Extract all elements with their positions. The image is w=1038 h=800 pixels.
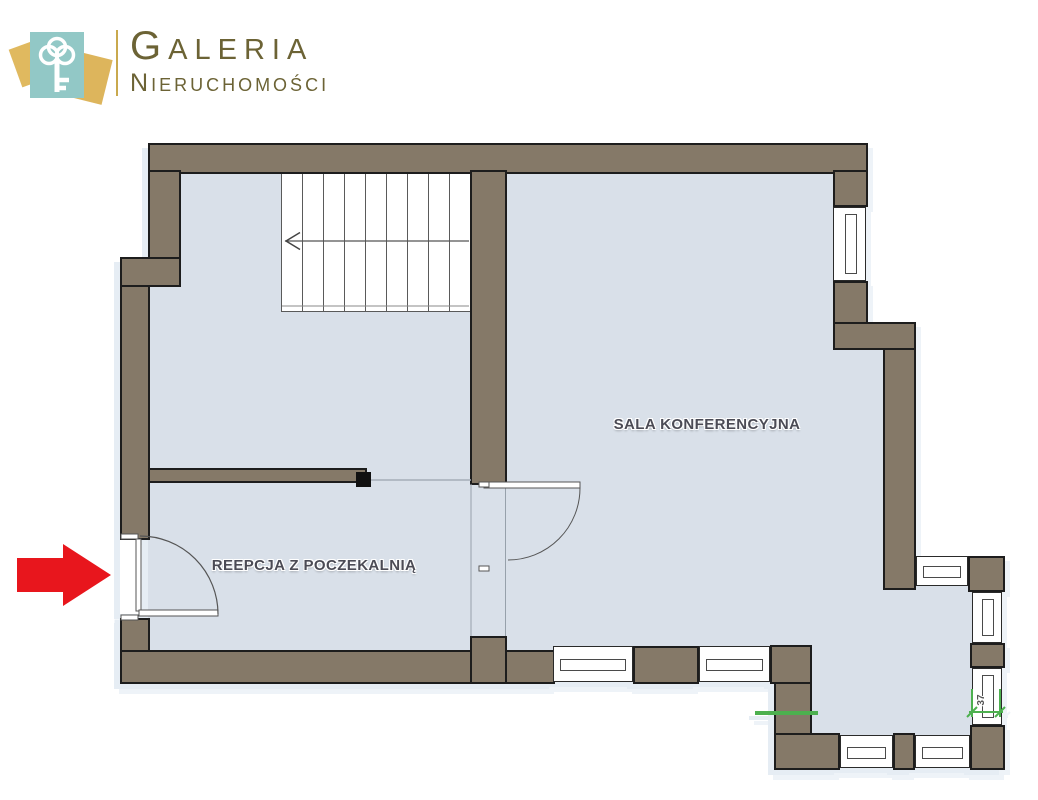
window xyxy=(553,646,633,682)
key-icon xyxy=(30,32,84,98)
window-glass xyxy=(847,747,886,759)
wall-interior-vertical xyxy=(470,170,507,485)
wall-bay-bottom-pier xyxy=(893,733,915,770)
wall-left-lower xyxy=(120,618,150,652)
wall-divider-endpost xyxy=(356,472,371,487)
floor-area-bay-right xyxy=(883,586,975,735)
wall-left-jog xyxy=(120,257,181,287)
window xyxy=(833,207,866,281)
wall-divider-reception xyxy=(148,468,367,483)
floor-area-conference-right xyxy=(833,346,885,654)
wall-right-mid2 xyxy=(883,348,916,590)
window xyxy=(915,735,970,768)
window-glass xyxy=(922,747,963,759)
wall-right-mid1 xyxy=(833,281,868,324)
dimension-value: 37 xyxy=(976,685,992,715)
wall-bay-left xyxy=(774,682,812,737)
window xyxy=(840,735,893,768)
window xyxy=(972,592,1002,643)
wall-right-upper xyxy=(833,170,868,207)
floor-area-conference xyxy=(503,170,835,654)
floor-plan xyxy=(0,0,1038,800)
brand-name: GALERIA xyxy=(130,26,329,70)
floor-area-bay-lower xyxy=(810,648,885,737)
room-label-reception: REEPCJA Z POCZEKALNIĄ xyxy=(184,557,444,574)
window-glass xyxy=(560,659,626,671)
wall-interior-vertical-lower xyxy=(470,636,507,684)
stairs xyxy=(281,172,471,312)
entrance-opening xyxy=(120,540,140,614)
brand-text: GALERIA NIERUCHOMOŚCI xyxy=(130,26,329,98)
wall-left-upper xyxy=(148,170,181,259)
wall-bay-left-top xyxy=(770,645,812,684)
wall-bay-top-corner xyxy=(968,556,1005,592)
window-glass xyxy=(706,659,763,671)
room-label-conference: SALA KONFERENCYJNA xyxy=(577,416,837,433)
window-glass xyxy=(923,566,961,578)
wall-right-step xyxy=(833,322,916,350)
logo-separator xyxy=(116,30,118,96)
window xyxy=(916,556,968,586)
wall-bay-right-pier xyxy=(970,643,1005,668)
window xyxy=(699,646,770,682)
window-glass xyxy=(982,599,994,636)
wall-top xyxy=(148,143,868,174)
wall-left-mid xyxy=(120,285,150,540)
wall-bay-bottom-corner xyxy=(774,733,840,770)
window-glass xyxy=(845,214,857,274)
brand-subtitle: NIERUCHOMOŚCI xyxy=(130,70,329,98)
logo-tile xyxy=(30,32,84,98)
wall-bottom-pier xyxy=(633,646,699,684)
wall-bay-right-bottom xyxy=(970,725,1005,770)
brand-logo: GALERIA NIERUCHOMOŚCI xyxy=(12,22,342,114)
